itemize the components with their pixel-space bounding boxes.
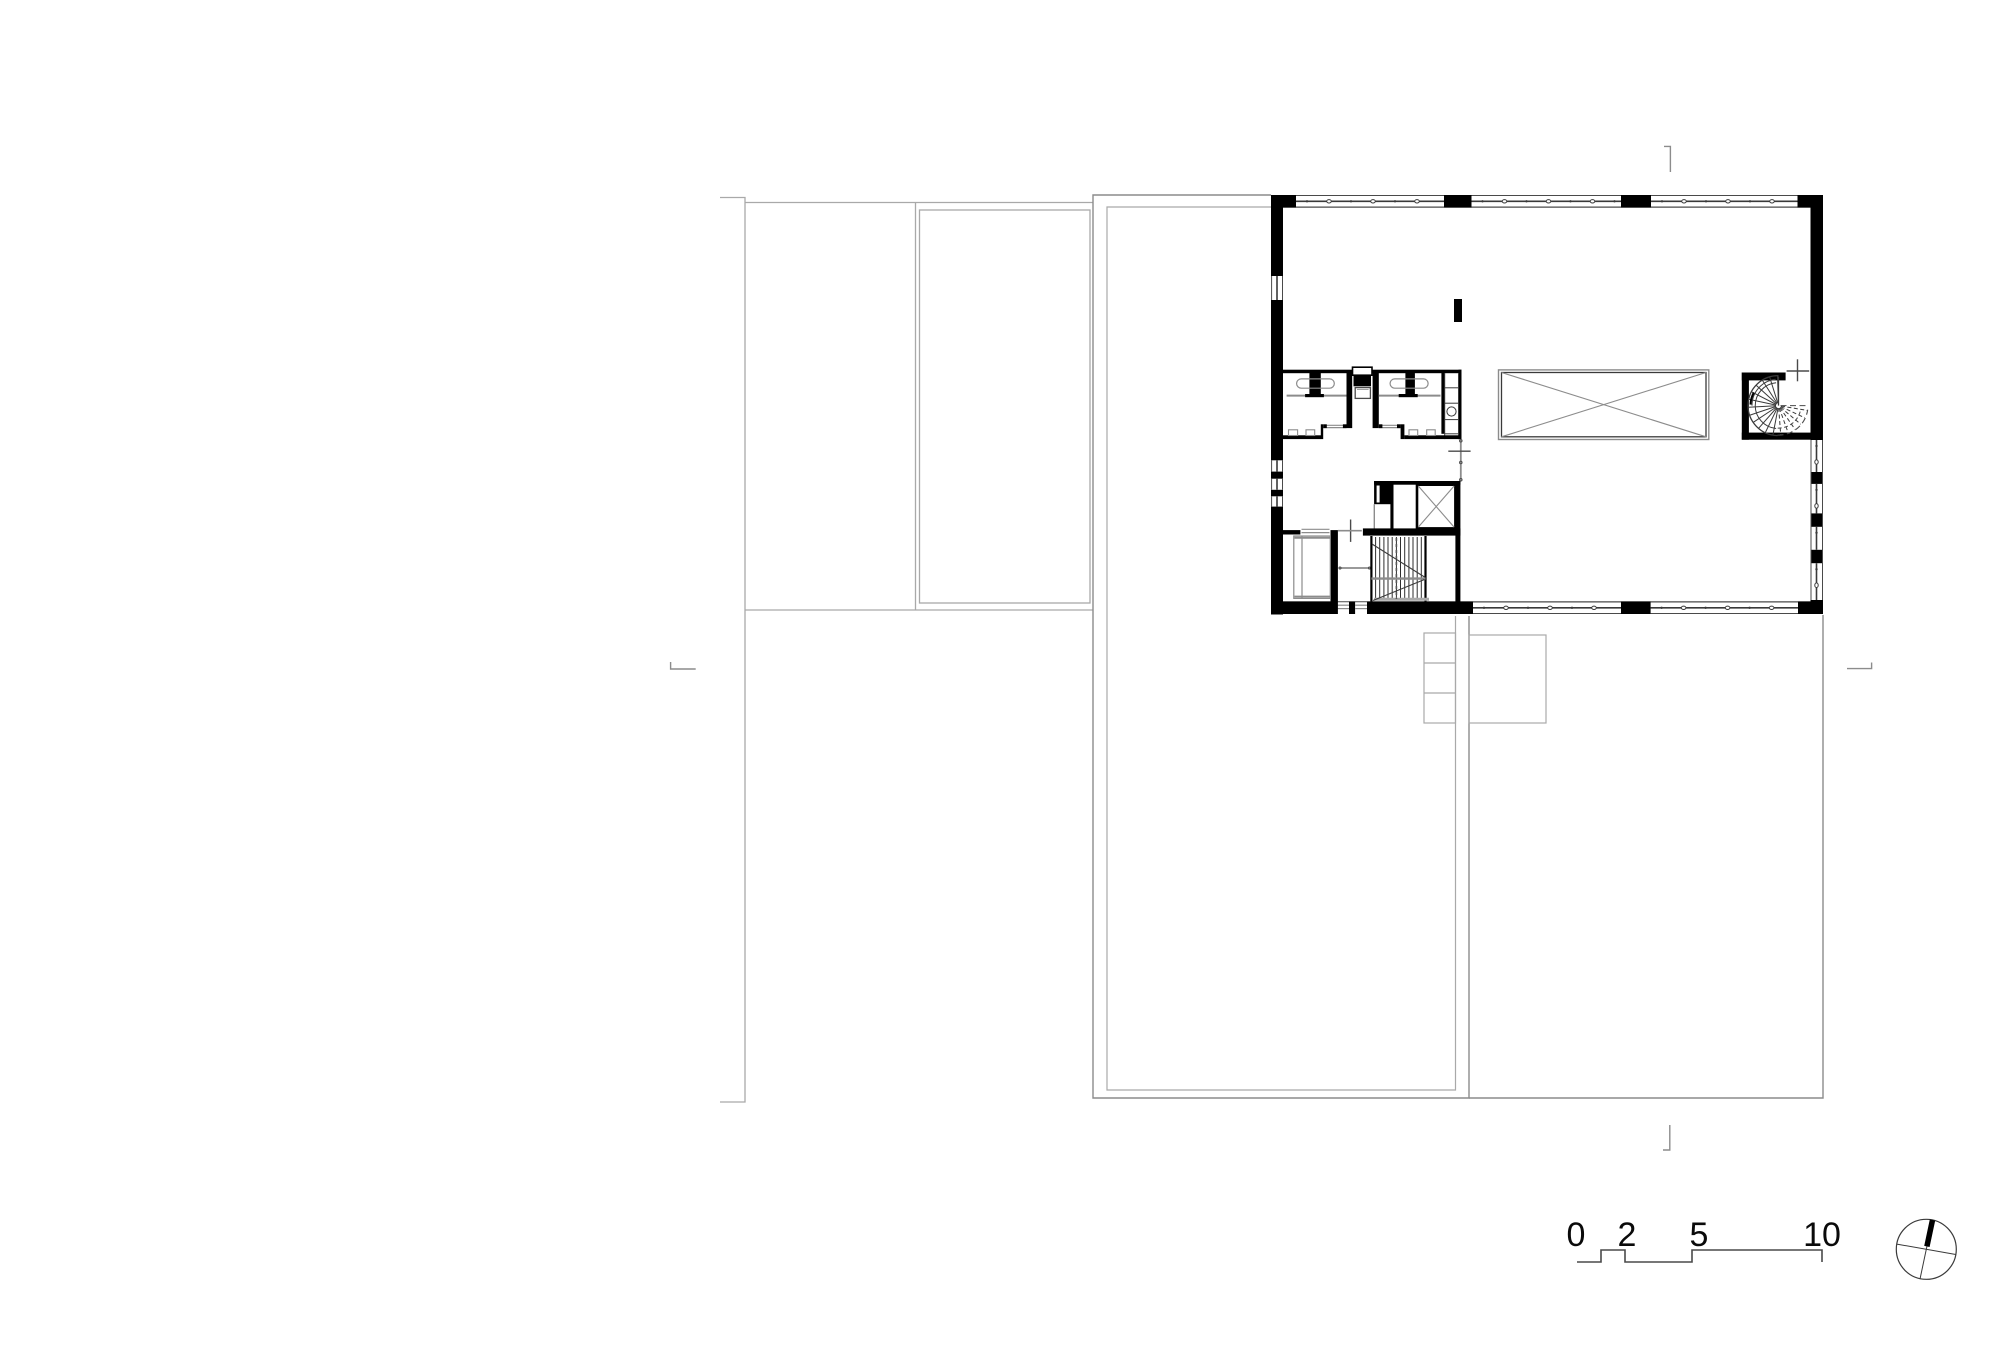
svg-text:10: 10 — [1803, 1216, 1841, 1254]
svg-text:5: 5 — [1690, 1216, 1709, 1254]
svg-text:2: 2 — [1618, 1216, 1637, 1254]
svg-text:0: 0 — [1567, 1216, 1586, 1254]
